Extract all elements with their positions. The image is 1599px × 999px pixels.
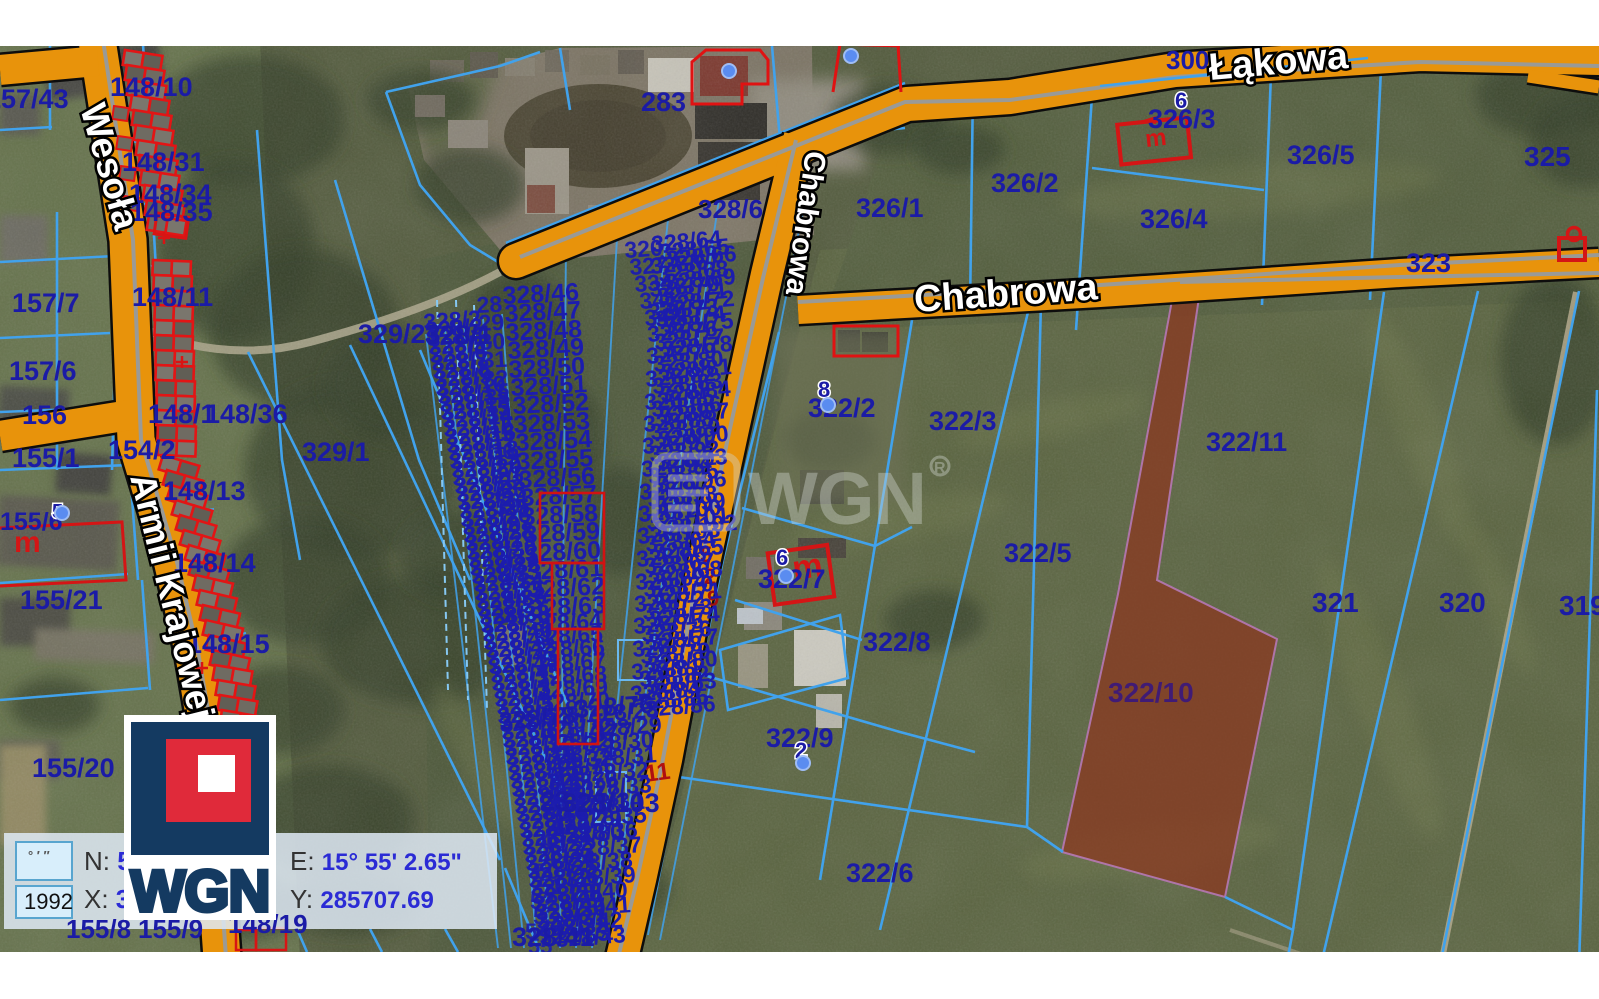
svg-text:157/7: 157/7 (12, 288, 80, 318)
svg-text:326/4: 326/4 (1140, 204, 1208, 234)
svg-text:325: 325 (1524, 141, 1571, 172)
svg-text:326/1: 326/1 (856, 193, 924, 223)
svg-text:° ′ ″: ° ′ ″ (28, 848, 50, 863)
svg-text:319: 319 (1559, 590, 1599, 621)
svg-text:1992: 1992 (24, 889, 73, 914)
svg-text:154/2: 154/2 (108, 435, 176, 465)
svg-text:300: 300 (1166, 45, 1209, 75)
svg-text:Y: 285707.69: Y: 285707.69 (290, 884, 434, 914)
svg-text:283: 283 (641, 87, 686, 117)
svg-text:WGN: WGN (748, 457, 926, 540)
svg-text:155/8: 155/8 (66, 914, 131, 944)
svg-text:328/1: 328/1 (425, 320, 493, 350)
svg-text:155/20: 155/20 (32, 753, 115, 783)
svg-text:R: R (934, 460, 946, 477)
svg-text:322/6: 322/6 (846, 858, 914, 888)
svg-text:148/36: 148/36 (205, 399, 288, 429)
svg-text:320: 320 (1439, 587, 1486, 618)
svg-text:329/1: 329/1 (302, 437, 370, 467)
svg-text:148/11: 148/11 (132, 282, 213, 312)
svg-text:157/43: 157/43 (0, 84, 69, 114)
svg-text:E: 15° 55' 2.65": E: 15° 55' 2.65" (290, 846, 462, 876)
svg-text:148/10: 148/10 (110, 72, 193, 102)
svg-text:323: 323 (1406, 248, 1451, 278)
svg-text:6: 6 (1175, 88, 1187, 113)
svg-text:X: 3: X: 3 (84, 884, 130, 914)
svg-text:155/21: 155/21 (20, 585, 103, 615)
svg-text:322/3: 322/3 (929, 406, 997, 436)
svg-text:322/10: 322/10 (1108, 677, 1194, 708)
svg-text:328/41: 328/41 (512, 922, 595, 952)
svg-text:326/2: 326/2 (991, 168, 1059, 198)
svg-text:326/5: 326/5 (1287, 140, 1355, 170)
svg-text:322/8: 322/8 (863, 627, 931, 657)
svg-text:322/5: 322/5 (1004, 538, 1072, 568)
svg-text:322/11: 322/11 (1206, 427, 1287, 457)
svg-text:WGN: WGN (131, 859, 270, 924)
svg-text:156: 156 (22, 400, 67, 430)
svg-text:328/6: 328/6 (698, 194, 763, 224)
svg-text:148/13: 148/13 (163, 476, 246, 506)
svg-text:148/31: 148/31 (122, 147, 205, 177)
svg-text:328/103: 328/103 (562, 788, 660, 818)
svg-text:6: 6 (776, 545, 788, 570)
svg-text:155/1: 155/1 (12, 443, 80, 473)
svg-text:157/6: 157/6 (9, 356, 77, 386)
svg-text:321: 321 (1312, 587, 1359, 618)
